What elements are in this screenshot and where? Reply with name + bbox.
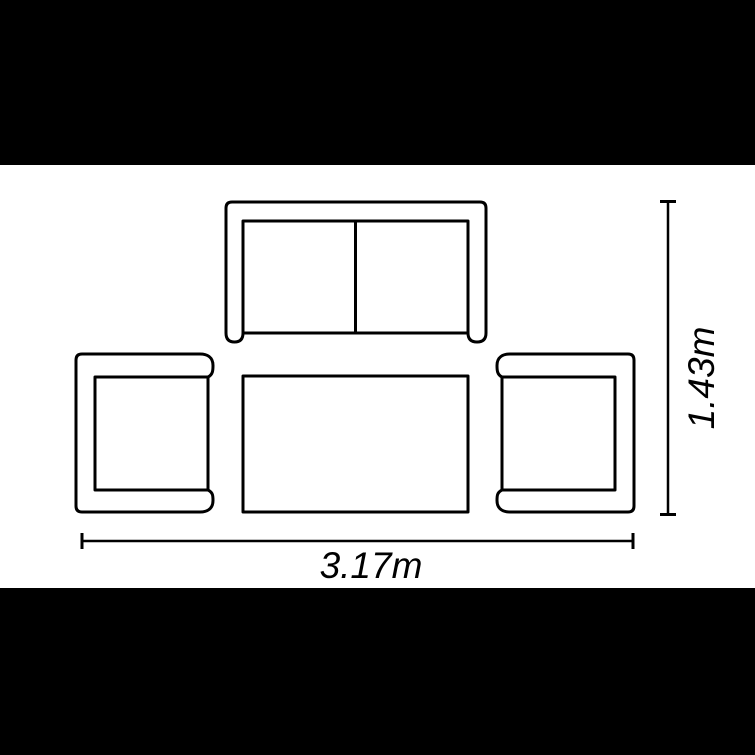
letterbox-bottom-bar [0,588,755,755]
height-dimension-label: 1.43m [681,327,722,430]
coffee-table-outline [243,376,468,512]
letterbox-top-bar [0,0,755,165]
dimension-labels-group: 3.17m 1.43m [320,327,722,586]
furniture-group [76,202,634,512]
screenshot-canvas: 3.17m 1.43m [0,0,755,755]
width-dimension-label: 3.17m [320,545,423,586]
armchair-right-seat-outline [502,377,615,490]
armchair-left-seat-outline [95,377,208,490]
furniture-plan-figure: 3.17m 1.43m [0,0,755,755]
